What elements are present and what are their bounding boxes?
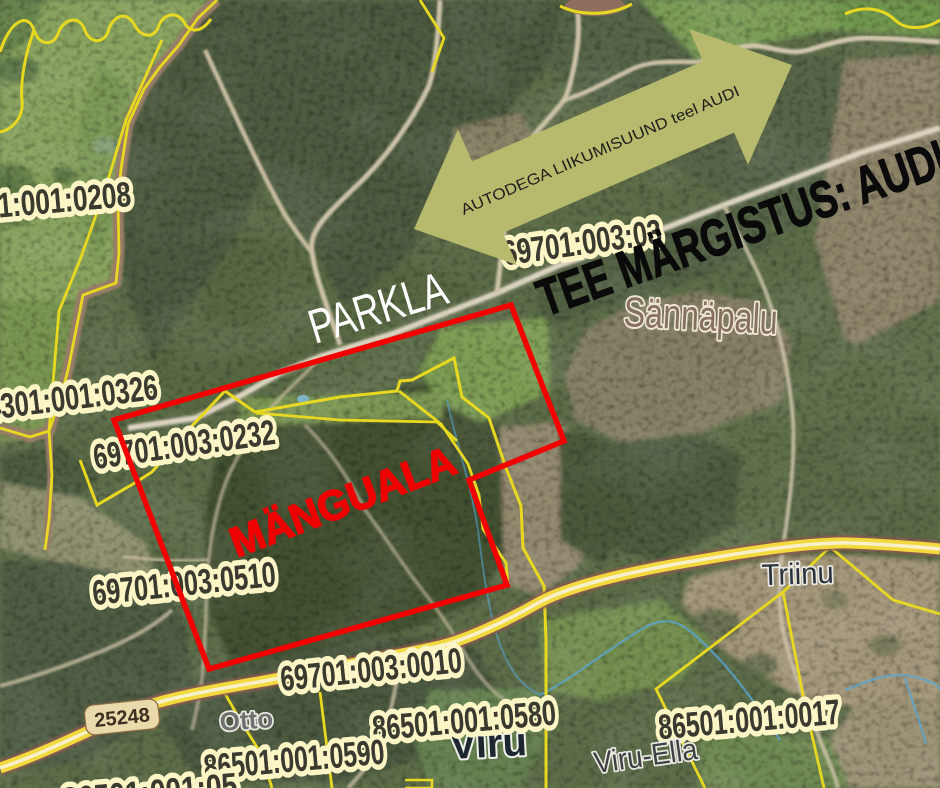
svg-text:Sännäpalu: Sännäpalu: [623, 288, 779, 343]
svg-text:Triinu: Triinu: [761, 557, 834, 592]
svg-text:Otto: Otto: [219, 703, 274, 737]
